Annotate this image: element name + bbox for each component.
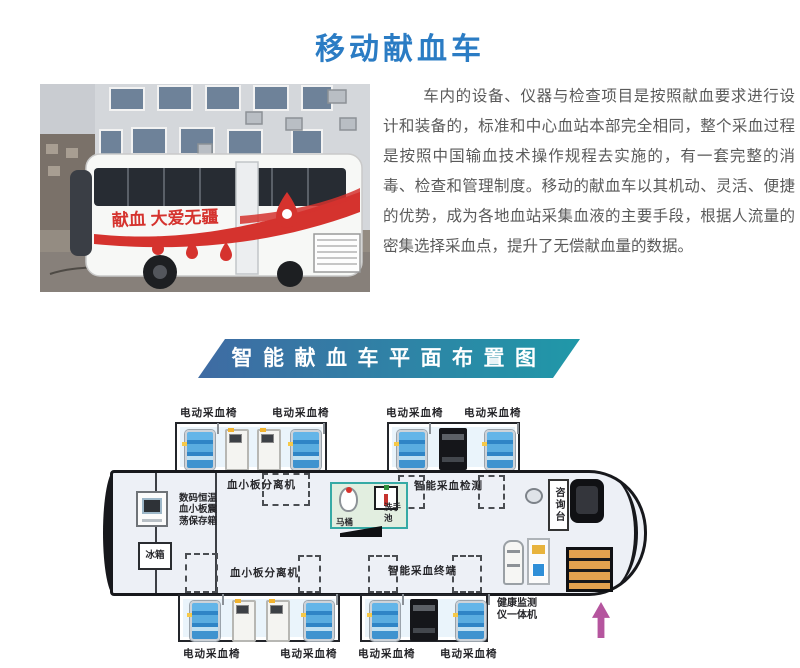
sink-label: 洗手池	[384, 502, 404, 523]
health-monitor-label: 健康监测仪一体机	[497, 598, 543, 622]
bus-slogan-text: 献血 大爱无疆	[111, 206, 218, 230]
donation-chair-icon	[370, 601, 400, 641]
page: 移动献血车	[0, 0, 800, 668]
driver-seat-icon	[570, 479, 604, 523]
top-bay-right	[387, 422, 520, 472]
top-bay-left	[175, 422, 327, 472]
separator-machine-icon	[266, 600, 290, 642]
consult-desk: 咨询台	[548, 479, 569, 531]
chair-label-top-2: 电动采血椅	[272, 405, 330, 420]
storage-box-icon	[136, 491, 168, 527]
separator-machine-icon	[232, 600, 256, 642]
floorplan: 电动采血椅 电动采血椅 电动采血椅 电动采血椅 血小板分离机	[0, 395, 800, 668]
banner-label: 智能献血车平面布置图	[232, 347, 547, 370]
health-monitor-screen-icon	[527, 538, 550, 585]
chair-label-bottom-3: 电动采血椅	[358, 646, 416, 661]
platelet-separator-label-bottom: 血小板分离机	[230, 565, 299, 580]
donation-chair-icon	[190, 601, 220, 641]
platelet-separator-label-top: 血小板分离机	[227, 477, 296, 492]
smart-detect-label: 智能采血检测	[414, 478, 483, 493]
chair-label-top-4: 电动采血椅	[464, 405, 522, 420]
basin-icon	[525, 488, 543, 504]
storage-box-label: 数码恒温血小板震荡保存箱	[179, 493, 221, 527]
equipment-footprint	[185, 553, 218, 593]
separator-machine-icon	[257, 429, 281, 471]
donation-chair-icon	[397, 430, 427, 470]
bus-photo-illustration: 献血 大爱无疆	[40, 84, 370, 292]
section-banner: 智能献血车平面布置图	[198, 339, 580, 378]
donation-chair-icon	[304, 601, 334, 641]
donation-chair-icon	[291, 430, 321, 470]
chair-label-bottom-2: 电动采血椅	[280, 646, 338, 661]
chair-label-top-1: 电动采血椅	[180, 405, 238, 420]
health-monitor-icon	[503, 540, 524, 585]
bottom-bay-right	[360, 594, 488, 642]
entrance-steps	[566, 547, 613, 592]
donation-chair-icon	[485, 430, 515, 470]
equipment-footprint	[298, 555, 321, 593]
smart-terminal-label: 智能采血终端	[388, 563, 457, 578]
bottom-bay-left	[178, 594, 340, 642]
donation-chair-icon	[456, 601, 486, 641]
chair-label-bottom-4: 电动采血椅	[440, 646, 498, 661]
chair-label-bottom-1: 电动采血椅	[183, 646, 241, 661]
intro-paragraph: 车内的设备、仪器与检查项目是按照献血要求进行设计和装备的，标准和中心血站本部完全…	[383, 82, 795, 261]
toilet-room: 马桶 洗手池	[330, 482, 408, 529]
fridge: 冰箱	[138, 542, 172, 570]
toilet-icon	[339, 487, 358, 512]
separator-machine-icon	[225, 429, 249, 471]
monitor-rack-icon	[439, 428, 467, 470]
chair-label-top-3: 电动采血椅	[386, 405, 444, 420]
page-title: 移动献血车	[0, 24, 800, 68]
donation-chair-icon	[185, 430, 215, 470]
monitor-rack-icon	[410, 599, 438, 641]
entrance-arrow-icon	[592, 602, 610, 638]
bus-photo: 献血 大爱无疆	[40, 84, 370, 292]
toilet-label: 马桶	[336, 516, 353, 528]
